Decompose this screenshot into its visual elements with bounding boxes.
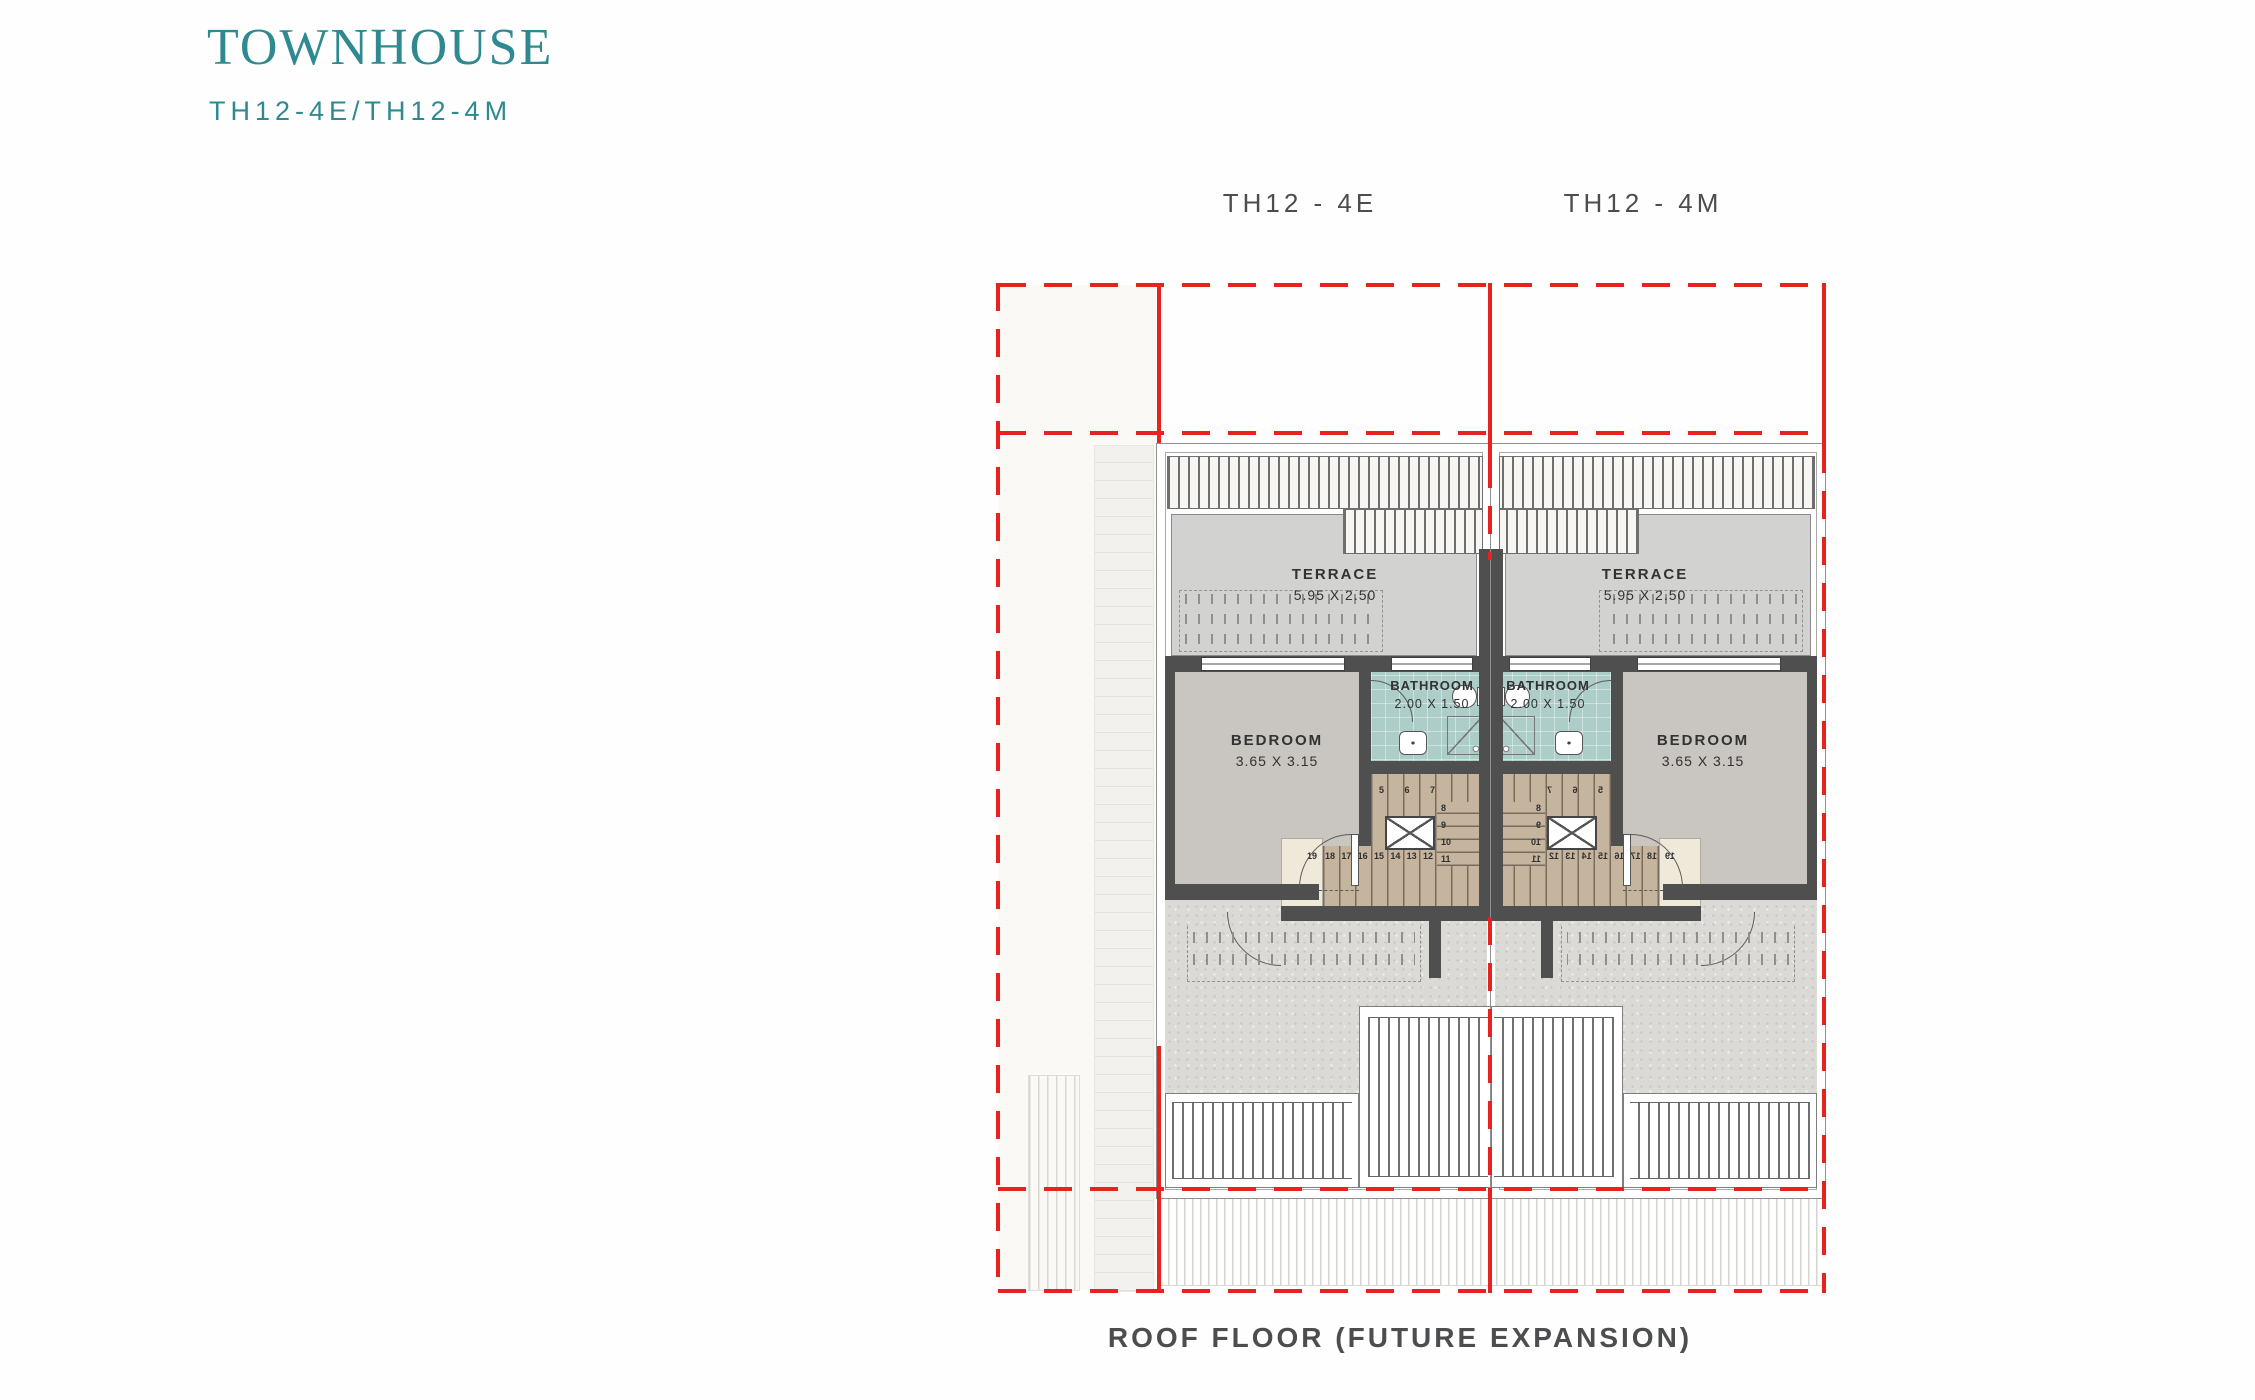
louver-roof-top	[1167, 456, 1483, 509]
pergola-ticks-row	[1567, 954, 1789, 965]
trellis-ticks-row	[1185, 614, 1377, 624]
stair-number: 6	[1404, 786, 1409, 795]
boundary-line-bottom	[998, 1289, 1826, 1293]
trellis-ticks-row	[1605, 614, 1797, 624]
stair-void-x	[1385, 816, 1435, 850]
bedroom-label-right: BEDROOM 3.65 X 3.15	[1613, 732, 1793, 769]
pergola-ticks-row	[1193, 954, 1415, 965]
room-name: TERRACE	[1245, 566, 1425, 583]
stair-void-x	[1547, 816, 1597, 850]
louver-roof-bottom-frame	[1165, 1093, 1359, 1188]
unit-plan-th12-4e: 5 6 7 8 9 10 11 12 13 14 15 16 17 18 19	[1156, 443, 1492, 1199]
bedroom-bottom-wall	[1663, 884, 1817, 900]
bathroom-window	[1391, 657, 1473, 671]
room-name: TERRACE	[1555, 566, 1735, 583]
ghost-roof-band	[1160, 1197, 1824, 1286]
stair-number: 9	[1525, 821, 1541, 830]
stair-number: 6	[1573, 786, 1578, 795]
wall-stub	[1541, 921, 1553, 978]
bathroom-stair-wall	[1359, 761, 1491, 774]
stair-number: 14	[1390, 852, 1400, 861]
bedroom-bottom-wall	[1165, 884, 1319, 900]
plot-line-left-bottom	[1157, 1046, 1161, 1293]
stair-number: 10	[1441, 838, 1457, 847]
boundary-line-right	[1822, 445, 1826, 1293]
terrace-label-right: TERRACE 5.95 X 2.50	[1555, 566, 1735, 603]
stair-number: 5	[1379, 786, 1384, 795]
bedroom-door-opening	[1623, 890, 1663, 893]
wall-stub	[1429, 921, 1441, 978]
bathroom-label-right: BATHROOM 2.00 X 1.50	[1458, 678, 1638, 711]
stair-number: 7	[1547, 786, 1552, 795]
room-name: BEDROOM	[1613, 732, 1793, 749]
stair-bottom-wall	[1491, 906, 1701, 921]
room-name: BATHROOM	[1458, 678, 1638, 693]
terrace-label-left: TERRACE 5.95 X 2.50	[1245, 566, 1425, 603]
boundary-line-top	[998, 283, 1826, 287]
louver-roof-bottom	[1172, 1102, 1352, 1179]
stair-number: 9	[1441, 821, 1457, 830]
bedroom-window	[1201, 657, 1345, 671]
louver-roof-bottom	[1630, 1102, 1810, 1179]
trellis-ticks-row	[1605, 634, 1797, 644]
stair-number: 11	[1441, 855, 1457, 864]
louver-roof-top	[1499, 456, 1815, 509]
stair-number: 12	[1423, 852, 1433, 861]
bedroom-door-leaf	[1623, 834, 1631, 886]
stair-number: 16	[1358, 852, 1368, 861]
bedroom-door-leaf	[1351, 834, 1359, 886]
trellis-ticks-row	[1185, 634, 1377, 644]
louver-roof-center	[1494, 1017, 1614, 1177]
stair-number: 8	[1441, 804, 1457, 813]
room-dims: 2.00 X 1.50	[1458, 697, 1638, 711]
bedroom-side-wall	[1807, 656, 1817, 900]
pergola-shade	[1561, 926, 1795, 982]
stair-side-wall	[1359, 774, 1371, 848]
boundary-line-lower	[998, 1187, 1826, 1191]
shower-icon	[1499, 716, 1535, 755]
bathroom-stair-wall	[1491, 761, 1623, 774]
stair-numbers-top: 5 6 7	[1379, 786, 1435, 795]
stair-numbers-right: 8 9 10 11	[1441, 804, 1457, 864]
stair-number: 14	[1582, 852, 1592, 861]
bedroom-door-opening	[1319, 890, 1359, 893]
page-title: TOWNHOUSE	[207, 18, 553, 77]
room-dims: 5.95 X 2.50	[1555, 587, 1735, 603]
stair-numbers-top: 5 6 7	[1547, 786, 1603, 795]
floor-caption: ROOF FLOOR (FUTURE EXPANSION)	[1050, 1322, 1750, 1354]
shower-icon	[1447, 716, 1483, 755]
stair-number: 13	[1407, 852, 1417, 861]
boundary-line-upper	[998, 431, 1826, 435]
floor-plan-page: TOWNHOUSE TH12-4E/TH12-4M TH12 - 4E TH12…	[0, 0, 2255, 1400]
stair-numbers-right: 8 9 10 11	[1525, 804, 1541, 864]
louver-roof-center	[1368, 1017, 1488, 1177]
unit-label-left: TH12 - 4E	[1180, 188, 1420, 219]
stair-number: 13	[1565, 852, 1575, 861]
unit-plan-th12-4m: 5 6 7 8 9 10 11 12 13 14 15 16 17 18 19	[1490, 443, 1826, 1199]
boundary-line-right-solid	[1822, 283, 1826, 445]
center-line-bottom	[1488, 1188, 1492, 1293]
center-line-upper-dashed	[1488, 460, 1492, 560]
center-line-lower-dashed	[1488, 917, 1492, 1188]
ghost-slat-column	[1028, 1075, 1080, 1291]
louver-roof-step	[1499, 509, 1639, 554]
party-wall	[1491, 549, 1503, 921]
washbasin-icon	[1399, 731, 1427, 755]
louver-roof-center-frame	[1359, 1006, 1491, 1188]
room-dims: 5.95 X 2.50	[1245, 587, 1425, 603]
bedroom-window	[1637, 657, 1781, 671]
louver-roof-center-frame	[1491, 1006, 1623, 1188]
stair-bottom-wall	[1281, 906, 1491, 921]
stair-number: 10	[1525, 838, 1541, 847]
page-subtitle: TH12-4E/TH12-4M	[209, 96, 512, 127]
bedroom-label-left: BEDROOM 3.65 X 3.15	[1187, 732, 1367, 769]
louver-roof-bottom-frame	[1623, 1093, 1817, 1188]
stair-side-wall	[1611, 774, 1623, 848]
louver-roof-step	[1343, 509, 1483, 554]
stair-number: 15	[1598, 852, 1608, 861]
stair-number: 12	[1549, 852, 1559, 861]
stair-number: 11	[1525, 855, 1541, 864]
plot-line-left-top	[1157, 283, 1161, 443]
pergola-ticks-row	[1193, 932, 1415, 943]
washbasin-icon	[1555, 731, 1583, 755]
boundary-line-left	[996, 283, 1000, 1293]
unit-label-right: TH12 - 4M	[1523, 188, 1763, 219]
bedroom-side-wall	[1165, 656, 1175, 900]
stair-number: 5	[1598, 786, 1603, 795]
ghost-neighbor-strip	[1094, 445, 1154, 1292]
room-dims: 3.65 X 3.15	[1613, 753, 1793, 769]
stair-number: 8	[1525, 804, 1541, 813]
bathroom-window	[1509, 657, 1591, 671]
pergola-shade	[1187, 926, 1421, 982]
stair-number: 7	[1430, 786, 1435, 795]
center-line-top	[1488, 283, 1492, 460]
pergola-ticks-row	[1567, 932, 1789, 943]
stair-number: 15	[1374, 852, 1384, 861]
room-name: BEDROOM	[1187, 732, 1367, 749]
room-dims: 3.65 X 3.15	[1187, 753, 1367, 769]
